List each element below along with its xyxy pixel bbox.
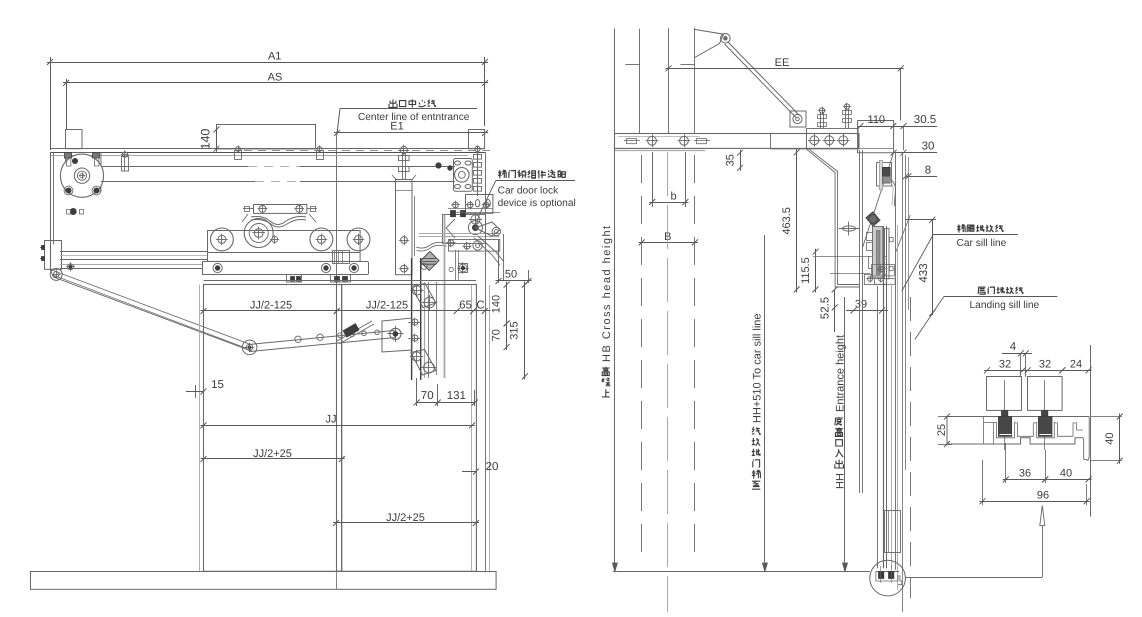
svg-text:C: C	[476, 300, 484, 312]
svg-text:JJ/2-125: JJ/2-125	[366, 300, 408, 312]
svg-text:8: 8	[925, 165, 931, 177]
svg-text:HB Cross head height: HB Cross head height	[601, 224, 613, 362]
svg-text:A1: A1	[268, 51, 281, 63]
svg-text:131: 131	[447, 390, 466, 402]
svg-text:39: 39	[855, 299, 867, 311]
svg-text:32: 32	[1039, 358, 1051, 370]
svg-text:96: 96	[1037, 490, 1049, 502]
svg-text:463.5: 463.5	[781, 207, 793, 235]
svg-text:b: b	[670, 191, 676, 203]
svg-text:140: 140	[199, 129, 213, 150]
svg-text:Landing sill line: Landing sill line	[970, 300, 1040, 311]
svg-text:115.5: 115.5	[800, 257, 812, 284]
svg-text:JJ/2-125: JJ/2-125	[250, 300, 292, 312]
svg-text:20: 20	[486, 461, 499, 473]
svg-text:32: 32	[999, 358, 1011, 370]
svg-text:15: 15	[211, 379, 224, 391]
svg-text:AS: AS	[268, 72, 283, 84]
svg-text:device is optional: device is optional	[498, 198, 576, 209]
svg-text:JJ: JJ	[326, 413, 337, 425]
svg-text:4: 4	[1010, 341, 1017, 353]
svg-text:433: 433	[918, 263, 930, 282]
svg-text:110: 110	[868, 114, 886, 126]
svg-text:40: 40	[1104, 432, 1116, 444]
svg-text:65: 65	[459, 300, 472, 312]
svg-text:315: 315	[509, 321, 521, 339]
svg-text:36: 36	[1019, 467, 1031, 479]
svg-text:EE: EE	[775, 57, 790, 69]
svg-text:70: 70	[421, 390, 434, 402]
svg-text:30.5: 30.5	[914, 114, 936, 126]
svg-text:140: 140	[491, 295, 503, 313]
svg-text:24: 24	[1070, 358, 1082, 370]
svg-text:70: 70	[490, 329, 502, 341]
svg-text:E1: E1	[390, 121, 403, 133]
svg-text:HH+510 To car sill line: HH+510 To car sill line	[752, 313, 764, 423]
svg-text:Car door lock: Car door lock	[498, 185, 559, 196]
svg-text:Center line of entntrance: Center line of entntrance	[358, 112, 470, 123]
svg-text:52.5: 52.5	[820, 297, 832, 319]
svg-text:25: 25	[936, 424, 948, 436]
svg-text:30: 30	[922, 141, 935, 153]
svg-text:50: 50	[505, 269, 517, 281]
svg-text:JJ/2+25: JJ/2+25	[386, 512, 425, 524]
svg-text:JJ/2+25: JJ/2+25	[253, 448, 292, 460]
svg-text:35: 35	[724, 154, 736, 166]
svg-text:40: 40	[1060, 467, 1072, 479]
svg-text:Car sill line: Car sill line	[957, 238, 1007, 249]
